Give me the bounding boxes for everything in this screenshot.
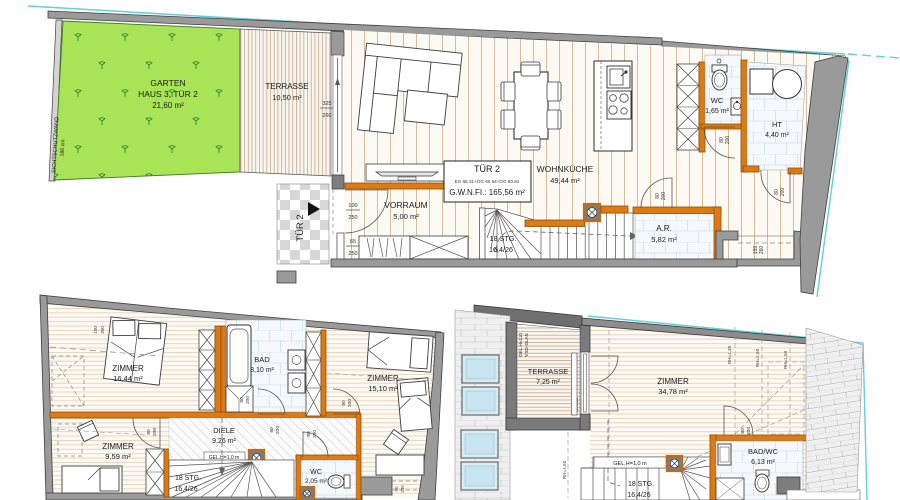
svg-text:VSG-GLAS: VSG-GLAS — [524, 333, 529, 357]
svg-text:BAD: BAD — [254, 355, 270, 364]
svg-text:250: 250 — [348, 251, 357, 257]
svg-text:200: 200 — [347, 399, 353, 407]
svg-text:200: 200 — [780, 188, 786, 197]
svg-text:8,10 m²: 8,10 m² — [250, 367, 274, 374]
svg-text:200: 200 — [275, 426, 281, 434]
svg-text:250: 250 — [348, 215, 357, 221]
svg-text:80: 80 — [146, 429, 152, 435]
svg-text:65: 65 — [350, 239, 356, 245]
svg-text:9,59 m²: 9,59 m² — [105, 452, 131, 461]
svg-text:6,13 m²: 6,13 m² — [751, 459, 775, 466]
svg-text:16,44 m²: 16,44 m² — [113, 374, 143, 383]
svg-text:HAUS 3, TÜR 2: HAUS 3, TÜR 2 — [138, 89, 198, 99]
svg-text:325: 325 — [322, 101, 331, 107]
svg-text:WC: WC — [711, 96, 724, 105]
svg-text:2,05 m²: 2,05 m² — [305, 478, 328, 485]
svg-text:DIELE: DIELE — [213, 426, 235, 435]
svg-text:RH=1,35: RH=1,35 — [727, 345, 732, 364]
svg-text:TERRASSE: TERRASSE — [528, 367, 568, 376]
svg-text:4,40 m²: 4,40 m² — [765, 132, 789, 139]
svg-text:10,50 m²: 10,50 m² — [272, 93, 302, 102]
svg-text:80: 80 — [341, 400, 347, 406]
svg-text:200: 200 — [312, 430, 318, 438]
svg-text:80: 80 — [306, 431, 312, 437]
svg-text:9,26 m²: 9,26 m² — [212, 438, 236, 445]
svg-text:ZIMMER: ZIMMER — [367, 374, 399, 383]
svg-text:200: 200 — [661, 192, 667, 201]
svg-text:ZIMMER: ZIMMER — [102, 442, 134, 451]
svg-text:200: 200 — [725, 136, 731, 145]
svg-text:260: 260 — [759, 246, 765, 255]
svg-text:200: 200 — [152, 428, 158, 436]
svg-text:VORRAUM: VORRAUM — [384, 200, 427, 210]
svg-text:49,44 m²: 49,44 m² — [550, 176, 580, 185]
svg-text:GEL.H=110: GEL.H=110 — [518, 333, 523, 357]
svg-text:15,10 m²: 15,10 m² — [368, 384, 398, 393]
svg-text:TÜR 2: TÜR 2 — [295, 214, 306, 241]
svg-text:ZIMMER: ZIMMER — [112, 364, 144, 373]
svg-text:18 STG.: 18 STG. — [628, 481, 654, 488]
svg-text:200: 200 — [245, 396, 251, 404]
svg-text:16,4/26: 16,4/26 — [489, 245, 513, 254]
svg-text:80: 80 — [269, 427, 275, 433]
svg-text:RH=1,50: RH=1,50 — [783, 350, 788, 369]
svg-text:18 STG.: 18 STG. — [490, 234, 517, 243]
svg-text:200: 200 — [746, 427, 752, 435]
svg-text:16,4/26: 16,4/26 — [627, 492, 650, 499]
svg-text:21,60 m²: 21,60 m² — [152, 101, 184, 110]
svg-text:1,65 m²: 1,65 m² — [705, 108, 729, 115]
svg-text:100: 100 — [93, 326, 98, 334]
svg-text:18 STG.: 18 STG. — [175, 475, 201, 482]
svg-text:100: 100 — [348, 203, 357, 209]
svg-text:TERRASSE: TERRASSE — [265, 82, 308, 91]
svg-text:300: 300 — [100, 326, 105, 334]
svg-text:WOHNKÜCHE: WOHNKÜCHE — [537, 164, 594, 174]
svg-text:235: 235 — [400, 485, 405, 493]
svg-text:RH=2,50: RH=2,50 — [755, 348, 760, 367]
svg-text:5,00 m²: 5,00 m² — [393, 212, 419, 221]
svg-text:7,25 m²: 7,25 m² — [536, 379, 560, 386]
svg-text:GARTEN: GARTEN — [150, 78, 185, 88]
svg-text:TÜR 2: TÜR 2 — [474, 164, 500, 174]
svg-text:ZIMMER: ZIMMER — [657, 377, 689, 386]
svg-text:5,82 m²: 5,82 m² — [651, 235, 677, 244]
svg-text:A.R.: A.R. — [656, 224, 672, 233]
svg-text:RH=1,50: RH=1,50 — [562, 460, 567, 479]
svg-text:80: 80 — [239, 397, 245, 403]
svg-text:HT: HT — [772, 120, 782, 129]
svg-text:G.W.N.FI.: 165,56 m²: G.W.N.FI.: 165,56 m² — [449, 188, 525, 197]
svg-text:90: 90 — [394, 486, 399, 492]
svg-text:GEL.H=1,0 m: GEL.H=1,0 m — [613, 461, 647, 467]
svg-text:34,78 m²: 34,78 m² — [658, 387, 688, 396]
svg-text:80: 80 — [740, 428, 746, 434]
svg-text:260: 260 — [322, 113, 331, 119]
svg-text:180 cm: 180 cm — [60, 139, 67, 156]
svg-text:BAD/WC: BAD/WC — [748, 447, 779, 456]
svg-text:EG 66.31+OG 60.54+OG 60.91: EG 66.31+OG 60.54+OG 60.91 — [455, 179, 520, 184]
svg-text:WC: WC — [310, 469, 322, 476]
svg-text:16,4/26: 16,4/26 — [174, 486, 197, 493]
